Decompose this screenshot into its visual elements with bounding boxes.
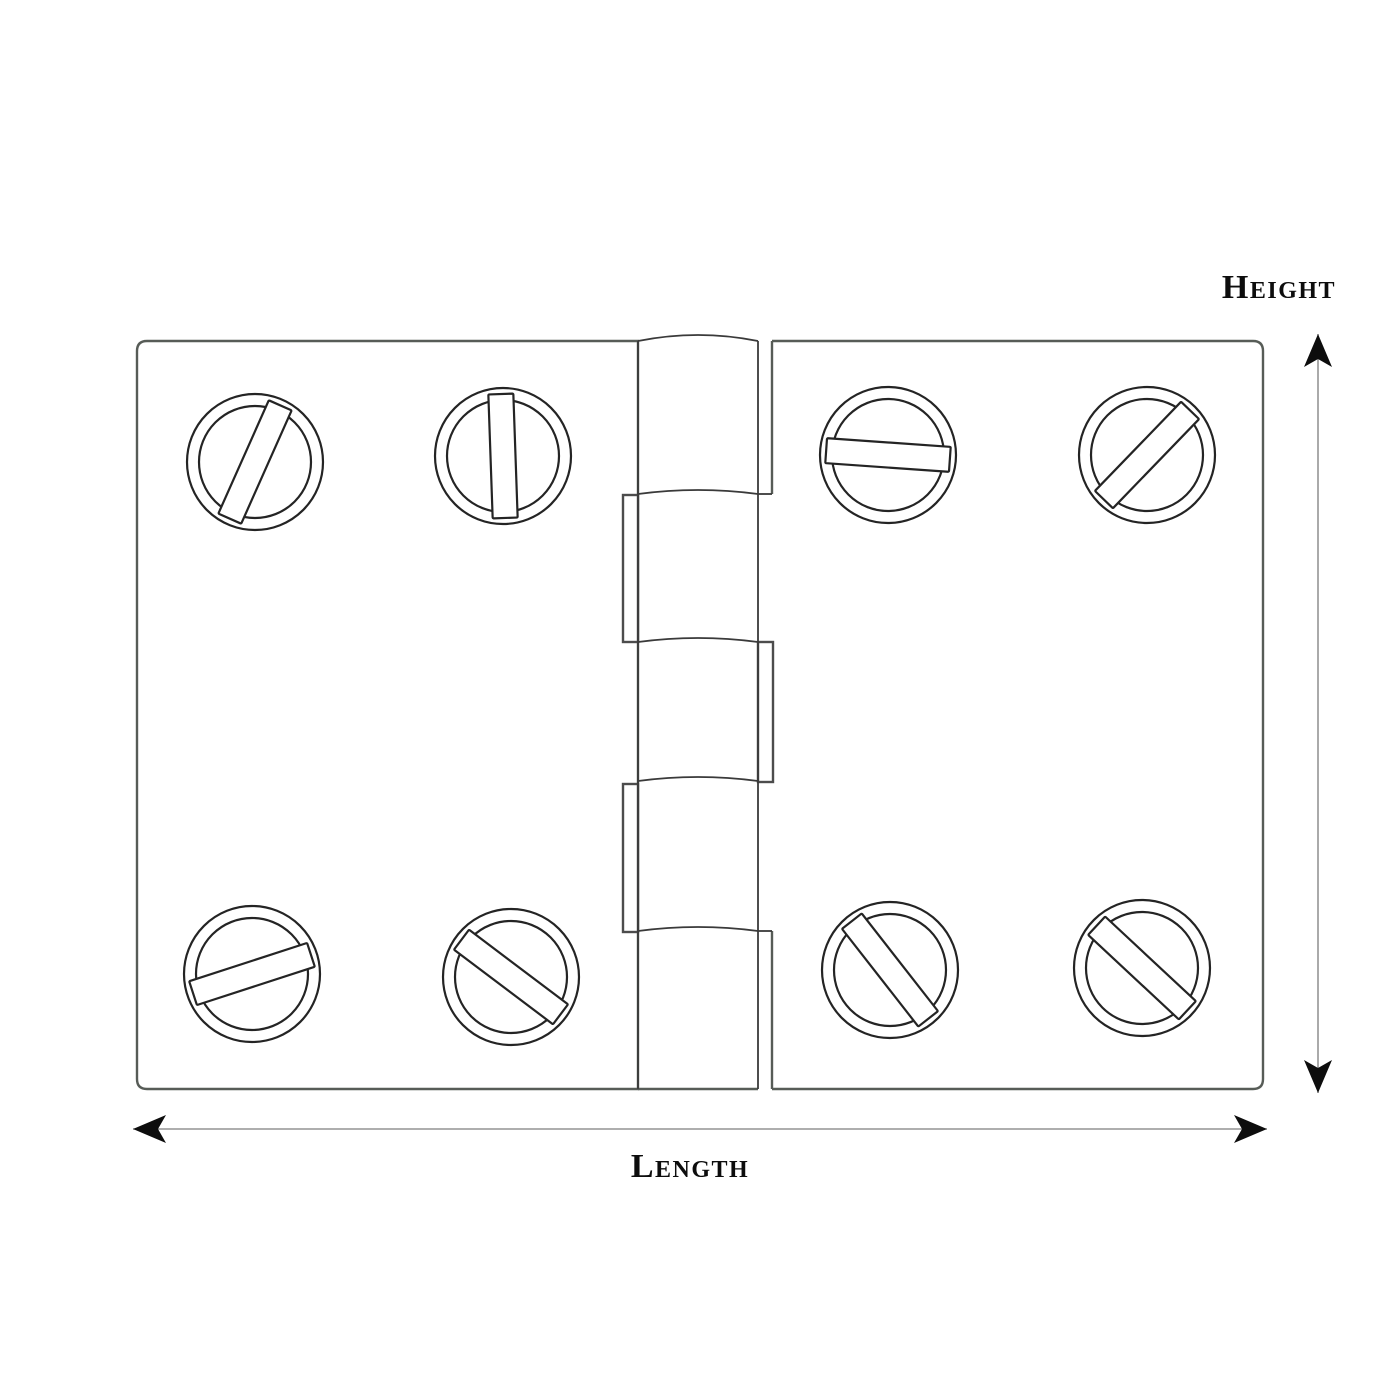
knuckle-tab <box>758 642 773 782</box>
length-label: Length <box>631 1148 749 1185</box>
knuckle-joint-line <box>638 927 758 931</box>
hinge-diagram-svg: LengthHeight <box>0 0 1400 1400</box>
screw-3 <box>820 387 956 523</box>
knuckle-tab <box>623 784 638 932</box>
screw-8 <box>1074 900 1210 1036</box>
screw-slot <box>488 394 517 519</box>
screw-6 <box>443 909 579 1045</box>
knuckle-top-arch <box>638 335 758 341</box>
screw-4 <box>1079 387 1215 523</box>
knuckle-joint-line <box>638 490 758 494</box>
height-label: Height <box>1222 269 1336 306</box>
knuckle-tab <box>623 495 638 642</box>
hinge-technical-drawing: LengthHeight <box>0 0 1400 1400</box>
screw-7 <box>822 902 958 1038</box>
screw-2 <box>435 388 571 524</box>
screw-5 <box>184 906 320 1042</box>
screw-1 <box>187 394 323 530</box>
knuckle-joint-line <box>638 777 758 781</box>
knuckle-joint-line <box>638 638 758 642</box>
hinge-barrel <box>623 335 773 1089</box>
